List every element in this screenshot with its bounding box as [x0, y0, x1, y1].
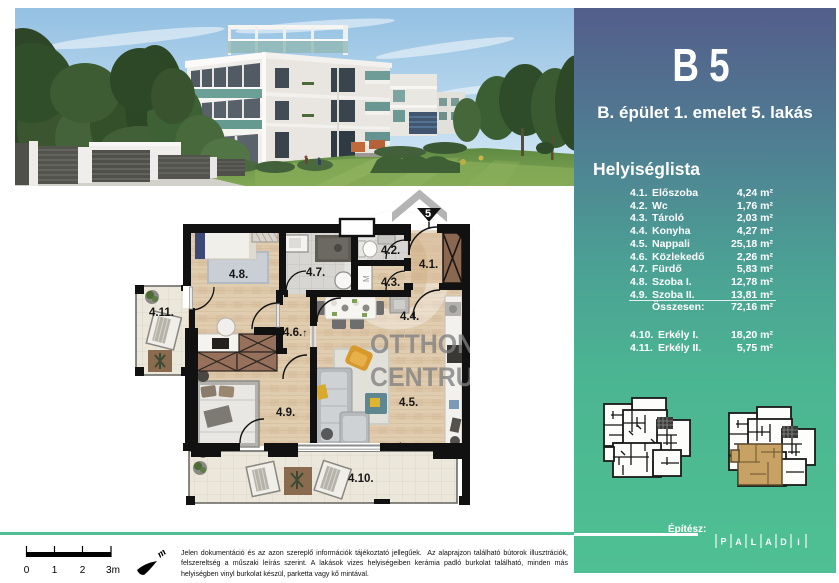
svg-text:A: A — [735, 537, 742, 547]
svg-text:4.5.: 4.5. — [399, 397, 418, 409]
svg-text:2: 2 — [80, 565, 86, 576]
svg-text:3m: 3m — [106, 565, 120, 576]
svg-text:4.11.: 4.11. — [149, 307, 174, 319]
svg-text:m: m — [155, 547, 168, 561]
svg-text:OTTHON: OTTHON — [370, 330, 475, 359]
svg-text:5: 5 — [425, 208, 431, 220]
svg-text:CENTRUM: CENTRUM — [370, 363, 475, 392]
svg-text:P: P — [720, 537, 726, 547]
svg-text:4.10.: 4.10. — [348, 473, 374, 485]
svg-text:D: D — [780, 537, 787, 547]
svg-text:A: A — [765, 537, 772, 547]
svg-text:4.1.: 4.1. — [419, 259, 438, 271]
svg-text:M: M — [362, 275, 371, 282]
svg-text:4.7.: 4.7. — [306, 267, 325, 279]
svg-text:4.9.: 4.9. — [276, 407, 295, 419]
svg-text:i: i — [797, 537, 800, 547]
svg-text:4.4.: 4.4. — [400, 311, 419, 323]
svg-text:0: 0 — [24, 565, 30, 576]
svg-text:1: 1 — [52, 565, 58, 576]
svg-text:4.3.: 4.3. — [381, 277, 400, 289]
svg-text:4.6.↑: 4.6.↑ — [283, 327, 307, 339]
svg-text:4.8.: 4.8. — [229, 269, 248, 281]
svg-text:4.2.: 4.2. — [381, 245, 400, 257]
svg-text:L: L — [751, 537, 757, 547]
